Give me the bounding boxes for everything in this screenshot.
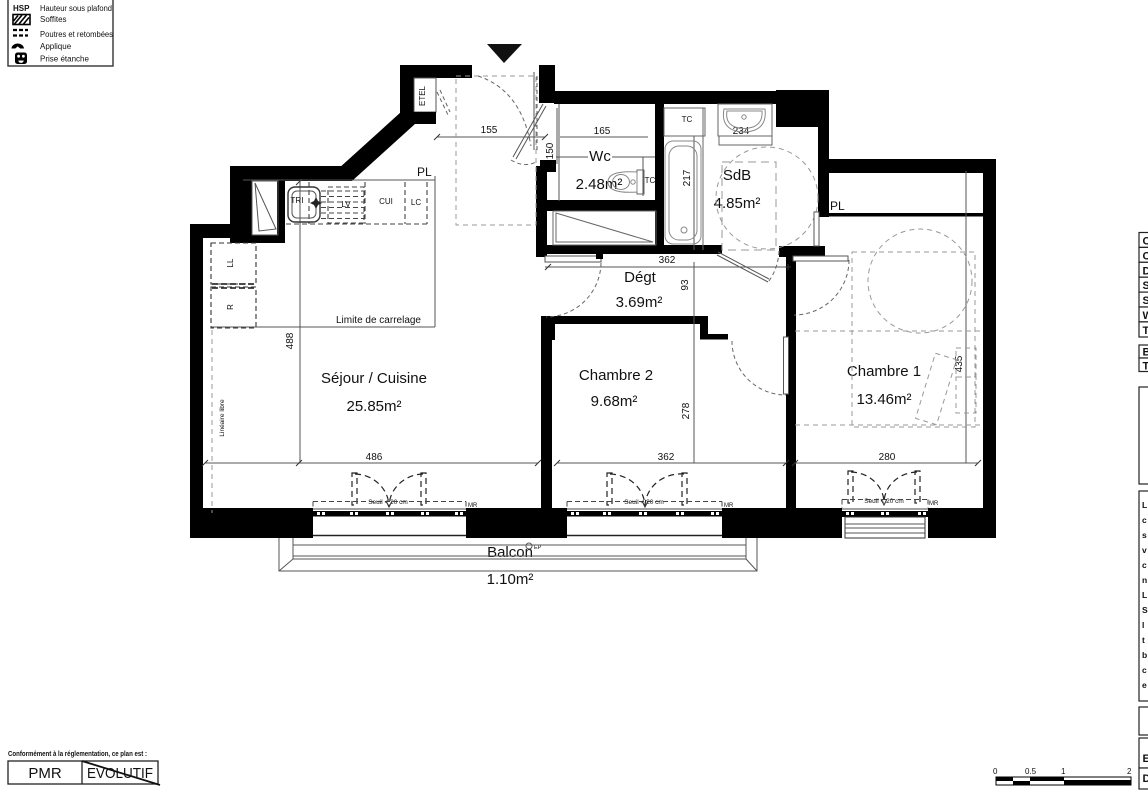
svg-text:To: To (1143, 325, 1148, 337)
svg-text:165: 165 (594, 126, 611, 137)
svg-text:PL: PL (417, 165, 432, 179)
svg-text:362: 362 (659, 255, 676, 266)
svg-text:HSP: HSP (13, 4, 30, 13)
svg-text:Linéaire libre: Linéaire libre (219, 399, 226, 437)
svg-text:Applique: Applique (40, 42, 72, 51)
svg-text:L: L (1142, 500, 1147, 510)
svg-text:EP: EP (534, 545, 542, 551)
svg-text:3.69m²: 3.69m² (616, 294, 663, 311)
svg-text:2: 2 (1127, 767, 1132, 776)
svg-text:PMR: PMR (28, 765, 62, 782)
svg-text:486: 486 (366, 452, 383, 463)
svg-text:E: E (1143, 753, 1148, 765)
svg-text:TC: TC (645, 176, 656, 185)
svg-text:R: R (226, 304, 235, 310)
svg-text:150: 150 (545, 142, 556, 159)
svg-text:LL: LL (226, 258, 235, 267)
svg-text:c: c (1142, 515, 1147, 525)
svg-text:To: To (1143, 361, 1148, 373)
svg-text:278: 278 (681, 402, 692, 419)
svg-text:Sé: Sé (1143, 280, 1148, 292)
svg-text:9.68m²: 9.68m² (591, 393, 638, 410)
svg-text:s: s (1142, 530, 1147, 540)
svg-text:1.10m²: 1.10m² (487, 571, 534, 588)
svg-text:MR: MR (929, 501, 939, 507)
svg-text:SdB: SdB (723, 167, 751, 184)
svg-text:MR: MR (724, 503, 734, 509)
svg-text:ETEL: ETEL (418, 85, 427, 106)
svg-text:S: S (1142, 605, 1148, 615)
svg-text:t: t (1142, 635, 1145, 645)
svg-text:e: e (1142, 680, 1147, 690)
svg-text:488: 488 (285, 332, 296, 349)
svg-text:Sd: Sd (1143, 295, 1148, 307)
svg-text:362: 362 (658, 452, 675, 463)
svg-text:D: D (1143, 265, 1148, 277)
svg-text:13.46m²: 13.46m² (856, 391, 911, 408)
svg-text:Séjour / Cuisine: Séjour / Cuisine (321, 370, 427, 387)
svg-text:n: n (1142, 575, 1147, 585)
svg-text:Chambre 1: Chambre 1 (847, 363, 921, 380)
svg-text:W: W (1143, 310, 1148, 322)
svg-text:Hauteur sous plafond: Hauteur sous plafond (40, 4, 112, 13)
svg-text:1: 1 (1061, 767, 1066, 776)
svg-text:v: v (1142, 545, 1147, 555)
svg-text:L: L (1142, 590, 1147, 600)
svg-text:PL: PL (830, 199, 845, 213)
svg-text:c: c (1142, 560, 1147, 570)
svg-text:D: D (1143, 773, 1148, 785)
svg-text:93: 93 (680, 279, 691, 291)
svg-text:Soffites: Soffites (40, 15, 67, 24)
svg-text:Limite de carrelage: Limite de carrelage (336, 315, 421, 326)
svg-text:CUI: CUI (379, 197, 393, 206)
svg-text:155: 155 (481, 125, 498, 136)
svg-text:TC: TC (682, 115, 693, 124)
svg-text:l: l (1142, 620, 1144, 630)
svg-text:Wc: Wc (589, 148, 611, 165)
svg-text:b: b (1142, 650, 1147, 660)
svg-text:25.85m²: 25.85m² (346, 398, 401, 415)
svg-text:Prise étanche: Prise étanche (40, 55, 89, 64)
svg-text:Chambre 2: Chambre 2 (579, 367, 653, 384)
svg-text:MR: MR (468, 503, 478, 509)
svg-text:LC: LC (411, 198, 421, 207)
svg-text:0.5: 0.5 (1025, 767, 1037, 776)
svg-text:C: C (1143, 236, 1148, 248)
svg-text:4.85m²: 4.85m² (714, 195, 761, 212)
svg-text:c: c (1142, 665, 1147, 675)
svg-text:Poutres et retombées: Poutres et retombées (40, 30, 113, 39)
svg-text:280: 280 (879, 452, 896, 463)
svg-text:B: B (1143, 347, 1148, 359)
svg-text:Dégt: Dégt (624, 269, 657, 286)
svg-text:C: C (1143, 250, 1148, 262)
svg-text:217: 217 (682, 169, 693, 186)
svg-text:0: 0 (993, 767, 998, 776)
svg-text:Conformément à la réglementati: Conformément à la réglementation, ce pla… (8, 749, 147, 758)
